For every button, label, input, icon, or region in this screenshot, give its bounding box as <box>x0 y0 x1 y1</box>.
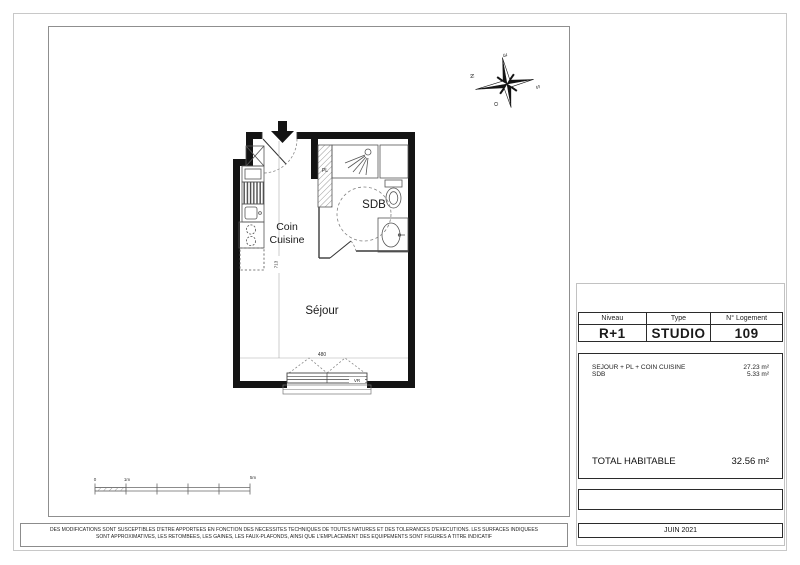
areas-rows: SEJOUR + PL + COIN CUISINE 27.23 m² SDB … <box>579 354 782 378</box>
scale-1m-label: 1m <box>124 477 131 482</box>
room-label-cuisine-1: Coin <box>276 221 298 233</box>
area-row-sejour: SEJOUR + PL + COIN CUISINE 27.23 m² <box>592 364 769 371</box>
closet-pl: PL <box>318 145 332 207</box>
room-label-cuisine-2: Cuisine <box>269 234 304 246</box>
floor-plan-drawing: PL <box>0 0 800 565</box>
fridge-icon <box>242 182 264 204</box>
turning-circle <box>337 187 391 241</box>
compass-rose-icon: N E S O <box>470 52 543 113</box>
interior-partitions <box>319 207 408 258</box>
washbasin-icon <box>378 218 408 252</box>
compass-north-label: N <box>470 73 477 78</box>
sdb-door <box>330 241 356 258</box>
value-logement: 109 <box>711 325 782 341</box>
compass-east-label: E <box>503 52 510 57</box>
disclaimer-box: DES MODIFICATIONS SONT SUSCEPTIBLES D'ET… <box>20 523 568 547</box>
closet-label: PL <box>322 168 328 174</box>
scale-bar: 0 1m 5m <box>94 475 257 495</box>
window: VR <box>283 358 371 394</box>
room-label-sejour: Séjour <box>305 305 338 317</box>
area-value: 5.33 m² <box>747 371 769 378</box>
area-row-sdb: SDB 5.33 m² <box>592 371 769 378</box>
dim-width-label: 480 <box>318 352 327 358</box>
shower-icon <box>332 145 378 178</box>
disclaimer-line-1: DES MODIFICATIONS SONT SUSCEPTIBLES D'ET… <box>21 527 567 534</box>
total-value: 32.56 m² <box>732 456 770 467</box>
scale-5m-label: 5m <box>250 475 257 480</box>
toilet-icon <box>385 180 402 208</box>
area-label: SDB <box>592 371 605 378</box>
empty-box <box>578 489 783 510</box>
areas-box: SEJOUR + PL + COIN CUISINE 27.23 m² SDB … <box>578 353 783 479</box>
entry-arrow-icon <box>271 121 294 143</box>
compass-west-label: O <box>494 100 501 106</box>
sink-icon <box>242 204 264 222</box>
floor-plan-sheet: PL <box>0 0 800 565</box>
header-type: Type <box>647 313 712 325</box>
area-label: SEJOUR + PL + COIN CUISINE <box>592 364 685 371</box>
disclaimer-line-2: SONT APPROXIMATIVES, LES RETOMBEES, LES … <box>21 534 567 541</box>
shutter-label: VR <box>354 378 361 383</box>
dim-height-label: 713 <box>274 260 279 268</box>
date-label: JUIN 2021 <box>664 527 697 534</box>
area-value: 27.23 m² <box>743 364 769 371</box>
value-niveau: R+1 <box>579 325 647 341</box>
compass-south-label: S <box>536 84 543 89</box>
room-label-sdb: SDB <box>362 199 386 211</box>
total-label: TOTAL HABITABLE <box>592 456 676 467</box>
scale-zero-label: 0 <box>94 477 97 482</box>
value-type: STUDIO <box>647 325 712 341</box>
header-niveau: Niveau <box>579 313 647 325</box>
title-block-table: Niveau Type N° Logement R+1 STUDIO 109 <box>578 312 783 342</box>
cooktop-icon <box>239 222 264 248</box>
total-row: TOTAL HABITABLE 32.56 m² <box>592 456 769 467</box>
date-box: JUIN 2021 <box>578 523 783 538</box>
header-logement: N° Logement <box>711 313 782 325</box>
